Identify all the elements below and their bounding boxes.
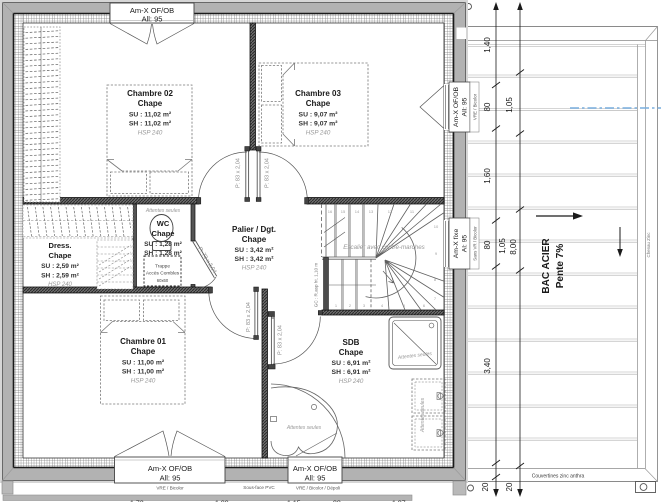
svg-text:BAC ACIER: BAC ACIER: [541, 238, 552, 294]
svg-text:All: 95: All: 95: [305, 474, 326, 483]
svg-text:Chape: Chape: [242, 235, 267, 244]
svg-text:All: 95: All: 95: [462, 97, 469, 116]
svg-text:12: 12: [388, 209, 393, 214]
svg-text:SU : 3,42 m²: SU : 3,42 m²: [235, 247, 275, 254]
svg-text:Accès Combles: Accès Combles: [146, 271, 180, 277]
svg-text:Sous-face PVC: Sous-face PVC: [243, 485, 275, 490]
svg-text:HSP 240: HSP 240: [131, 378, 156, 385]
svg-text:SH : 9,07 m²: SH : 9,07 m²: [299, 121, 339, 128]
svg-text:Couvertines zinc anthra: Couvertines zinc anthra: [532, 474, 585, 480]
svg-text:Attentes seules: Attentes seules: [145, 208, 181, 214]
svg-text:Chambre 01: Chambre 01: [120, 337, 166, 346]
svg-text:SU : 6,91 m²: SU : 6,91 m²: [332, 360, 372, 367]
svg-text:HSP 240: HSP 240: [242, 265, 267, 272]
svg-text:16: 16: [328, 209, 333, 214]
svg-text:3,40: 3,40: [483, 358, 492, 374]
svg-text:Chape: Chape: [49, 251, 72, 260]
svg-text:SU : 2,59 m²: SU : 2,59 m²: [41, 263, 80, 270]
svg-text:15: 15: [341, 209, 346, 214]
svg-text:8,00: 8,00: [509, 239, 518, 255]
svg-text:Chape: Chape: [152, 229, 175, 238]
svg-text:13: 13: [369, 209, 374, 214]
svg-text:SH : 11,02 m²: SH : 11,02 m²: [129, 121, 172, 128]
svg-text:P: 83 x 2,04: P: 83 x 2,04: [246, 302, 252, 332]
svg-text:1,40: 1,40: [483, 37, 492, 53]
svg-text:SU : 11,00 m²: SU : 11,00 m²: [122, 360, 165, 367]
svg-text:HSP 240: HSP 240: [138, 130, 163, 137]
svg-text:SU : 9,07 m²: SU : 9,07 m²: [299, 112, 339, 119]
svg-text:Chape: Chape: [131, 347, 156, 356]
svg-text:P: 83 x 2,04: P: 83 x 2,04: [278, 325, 284, 355]
svg-text:Trappe: Trappe: [155, 264, 170, 270]
svg-text:P: 83 x 2,04: P: 83 x 2,04: [236, 158, 242, 188]
svg-text:HSP 240: HSP 240: [306, 130, 331, 137]
svg-text:14: 14: [355, 209, 360, 214]
svg-text:GC : R.asp ht. 1,10 m: GC : R.asp ht. 1,10 m: [314, 263, 319, 308]
svg-text:VRE / Bicolor: VRE / Bicolor: [156, 486, 184, 491]
svg-text:60x60: 60x60: [157, 278, 169, 283]
svg-text:Pente 7%: Pente 7%: [555, 244, 566, 289]
svg-text:Chambre 03: Chambre 03: [295, 89, 341, 98]
svg-text:SU : 1,28 m²: SU : 1,28 m²: [144, 241, 183, 248]
svg-text:SH : 3,42 m²: SH : 3,42 m²: [235, 256, 275, 263]
svg-text:WC: WC: [157, 219, 170, 228]
svg-text:P: 83 x 2,04: P: 83 x 2,04: [265, 158, 271, 188]
svg-text:1,60: 1,60: [483, 168, 492, 184]
svg-text:Am-X OF/OB: Am-X OF/OB: [453, 87, 460, 127]
svg-text:Attentes seules: Attentes seules: [286, 425, 322, 431]
svg-text:SH : 6,91 m²: SH : 6,91 m²: [332, 369, 372, 376]
svg-text:Chambre 02: Chambre 02: [127, 89, 173, 98]
svg-text:Attentes seules: Attentes seules: [420, 397, 426, 433]
svg-text:SH : 1,28 m²: SH : 1,28 m²: [144, 250, 183, 257]
svg-text:VRE / Bicolor / Dépoli: VRE / Bicolor / Dépoli: [296, 486, 340, 491]
svg-text:Al: 95: Al: 95: [462, 235, 469, 253]
svg-text:Am-X OF/OB: Am-X OF/OB: [293, 464, 337, 473]
svg-text:HSP 240: HSP 240: [339, 378, 364, 385]
svg-text:80: 80: [483, 240, 492, 249]
svg-text:All: 95: All: 95: [142, 15, 163, 24]
svg-text:20: 20: [505, 482, 514, 491]
svg-text:SH : 2,59 m²: SH : 2,59 m²: [41, 273, 80, 280]
svg-text:Am-X fixe: Am-X fixe: [453, 229, 460, 259]
svg-text:80: 80: [483, 102, 492, 111]
svg-text:All: 95: All: 95: [160, 474, 181, 483]
svg-text:1,05: 1,05: [498, 238, 507, 254]
svg-text:Escalier avec contre-marches: Escalier avec contre-marches: [343, 244, 425, 251]
svg-text:SDB: SDB: [343, 338, 360, 347]
svg-text:Chape: Chape: [339, 348, 364, 357]
svg-text:1,05: 1,05: [505, 97, 514, 113]
svg-text:VRE / Bicolor: VRE / Bicolor: [473, 93, 478, 120]
svg-text:Am-X OF/OB: Am-X OF/OB: [148, 464, 192, 473]
svg-text:Palier / Dgt.: Palier / Dgt.: [232, 225, 276, 234]
svg-text:Chenau Zinc: Chenau Zinc: [646, 232, 651, 258]
svg-text:20: 20: [481, 482, 490, 491]
svg-text:Dress.: Dress.: [49, 241, 72, 250]
svg-text:HSP 240: HSP 240: [48, 282, 72, 288]
svg-text:SH : 11,00 m²: SH : 11,00 m²: [122, 369, 165, 376]
svg-text:Chape: Chape: [138, 99, 163, 108]
svg-text:10: 10: [434, 224, 439, 229]
svg-text:SU : 11,02 m²: SU : 11,02 m²: [129, 112, 172, 119]
svg-text:Sans VR / Bicolor: Sans VR / Bicolor: [473, 226, 478, 261]
svg-text:Chape: Chape: [306, 99, 331, 108]
